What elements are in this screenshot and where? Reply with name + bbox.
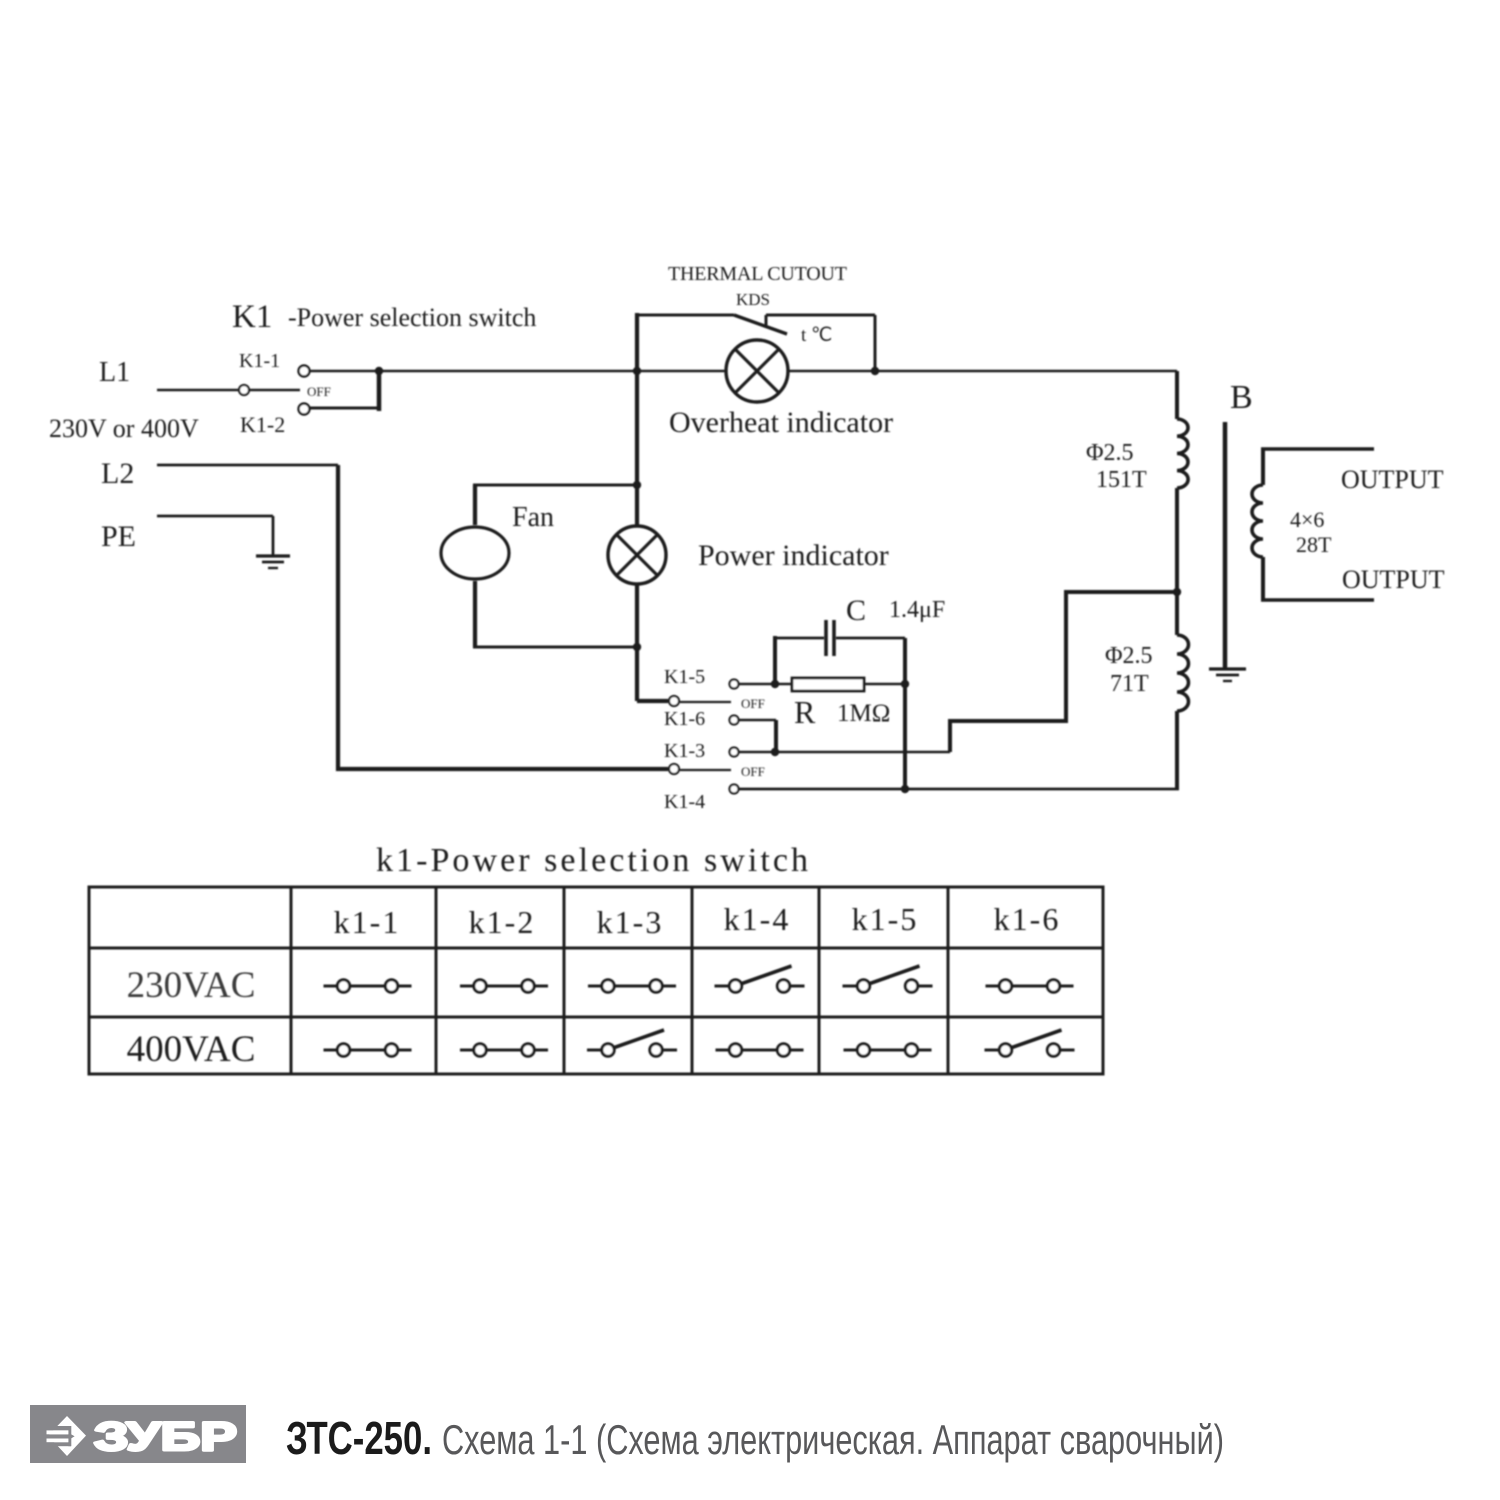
- svg-text:Overheat indicator: Overheat indicator: [669, 406, 893, 439]
- svg-text:OFF: OFF: [307, 384, 331, 399]
- svg-text:1MΩ: 1MΩ: [837, 700, 890, 727]
- svg-text:K1: K1: [232, 299, 272, 335]
- svg-text:4×6: 4×6: [1290, 507, 1324, 532]
- svg-text:OFF: OFF: [741, 764, 765, 779]
- svg-text:400VAC: 400VAC: [127, 1029, 256, 1070]
- svg-text:K1-4: K1-4: [664, 791, 705, 813]
- svg-text:k1-1: k1-1: [334, 904, 401, 940]
- svg-text:KDS: KDS: [736, 290, 770, 309]
- svg-text:k1-2: k1-2: [469, 904, 536, 940]
- svg-text:k1-Power selection switch: k1-Power selection switch: [376, 842, 808, 879]
- svg-text:k1-6: k1-6: [994, 901, 1061, 937]
- svg-text:ЗУБР: ЗУБР: [94, 1415, 237, 1459]
- svg-text:Power indicator: Power indicator: [698, 539, 889, 572]
- svg-text:THERMAL CUTOUT: THERMAL CUTOUT: [668, 263, 847, 285]
- svg-text:K1-2: K1-2: [240, 412, 285, 437]
- svg-text:L2: L2: [101, 457, 134, 490]
- svg-text:K1-1: K1-1: [239, 350, 280, 372]
- svg-text:L1: L1: [99, 357, 130, 388]
- svg-text:71T: 71T: [1110, 671, 1149, 697]
- svg-text:k1-5: k1-5: [852, 901, 919, 937]
- svg-text:K1-5: K1-5: [664, 666, 705, 688]
- svg-text:151T: 151T: [1096, 467, 1147, 493]
- svg-text:B: B: [1230, 379, 1253, 416]
- svg-text:Φ2.5: Φ2.5: [1086, 440, 1134, 466]
- svg-text:Φ2.5: Φ2.5: [1105, 643, 1153, 669]
- svg-text:Fan: Fan: [512, 502, 554, 533]
- svg-text:-Power selection switch: -Power selection switch: [288, 303, 536, 332]
- svg-text:R: R: [794, 694, 816, 730]
- svg-text:C: C: [846, 594, 866, 627]
- svg-text:k1-3: k1-3: [597, 904, 664, 940]
- svg-text:ЗТС-250.: ЗТС-250.: [286, 1412, 432, 1464]
- svg-text:230V or 400V: 230V or 400V: [49, 414, 199, 443]
- svg-text:230VAC: 230VAC: [127, 965, 256, 1006]
- svg-text:K1-3: K1-3: [664, 740, 705, 762]
- svg-text:Схема 1-1 (Схема электрическая: Схема 1-1 (Схема электрическая. Аппарат …: [442, 1416, 1224, 1463]
- svg-text:K1-6: K1-6: [664, 708, 705, 730]
- svg-text:t ℃: t ℃: [801, 325, 832, 346]
- svg-text:1.4μF: 1.4μF: [889, 597, 945, 623]
- svg-text:OUTPUT: OUTPUT: [1341, 465, 1444, 494]
- svg-text:OUTPUT: OUTPUT: [1342, 565, 1445, 594]
- svg-text:PE: PE: [101, 520, 136, 553]
- svg-text:k1-4: k1-4: [724, 901, 791, 937]
- svg-text:OFF: OFF: [741, 696, 765, 711]
- svg-text:28T: 28T: [1296, 532, 1332, 557]
